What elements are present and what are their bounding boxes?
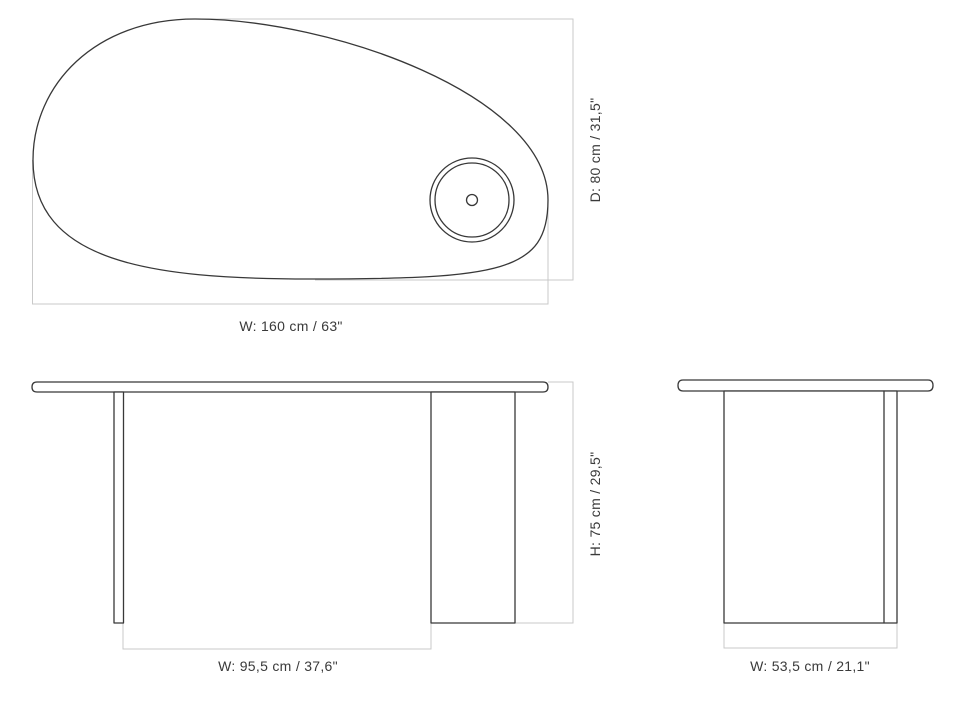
tabletop-side <box>678 380 933 391</box>
width-extension-lines-front-view <box>123 623 431 649</box>
side-view <box>678 380 933 648</box>
dimension-label-top-width: W: 160 cm / 63" <box>239 318 342 334</box>
dimension-label-front-height: H: 75 cm / 29,5" <box>587 452 603 557</box>
top-view <box>33 19 574 304</box>
technical-drawing: W: 160 cm / 63" D: 80 cm / 31,5" H: 75 c… <box>0 0 972 707</box>
right-leg-panel <box>431 392 515 623</box>
height-extension-lines <box>515 382 573 623</box>
left-leg-panel-edge <box>114 392 124 623</box>
tabletop-front <box>32 382 548 392</box>
drawing-linework <box>0 0 972 707</box>
front-view <box>32 382 573 649</box>
width-extension-lines-side-view <box>724 623 897 648</box>
dimension-label-side-width: W: 53,5 cm / 21,1" <box>750 658 870 674</box>
dimension-label-front-width: W: 95,5 cm / 37,6" <box>218 658 338 674</box>
dimension-label-top-depth: D: 80 cm / 31,5" <box>587 98 603 203</box>
side-leg-panel <box>724 391 897 623</box>
grommet-center-dot <box>467 195 478 206</box>
